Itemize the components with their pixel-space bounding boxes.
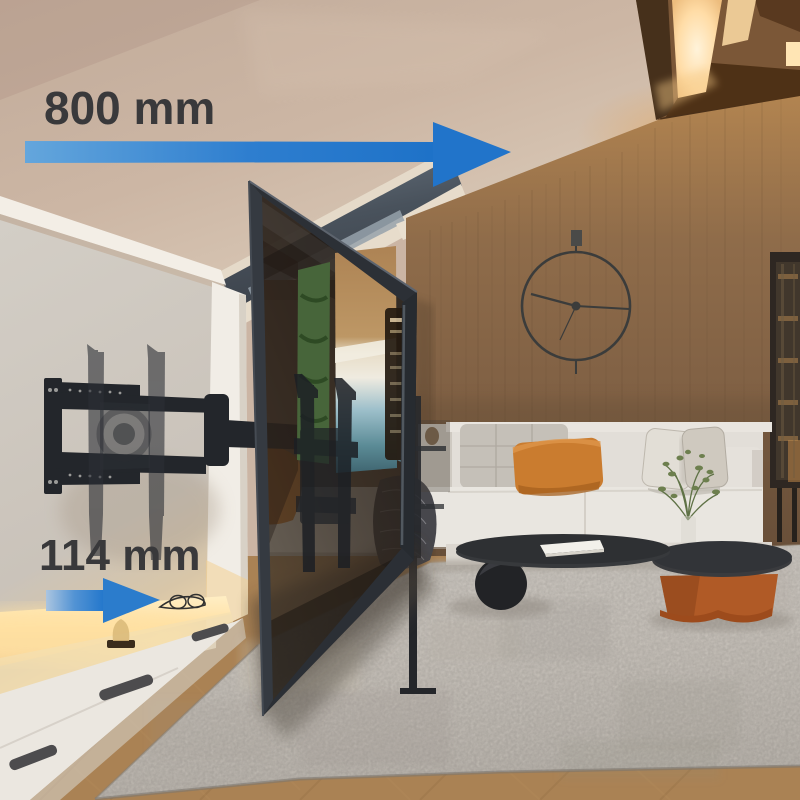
svg-text:800 mm: 800 mm xyxy=(44,82,215,134)
svg-text:114 mm: 114 mm xyxy=(39,531,200,580)
